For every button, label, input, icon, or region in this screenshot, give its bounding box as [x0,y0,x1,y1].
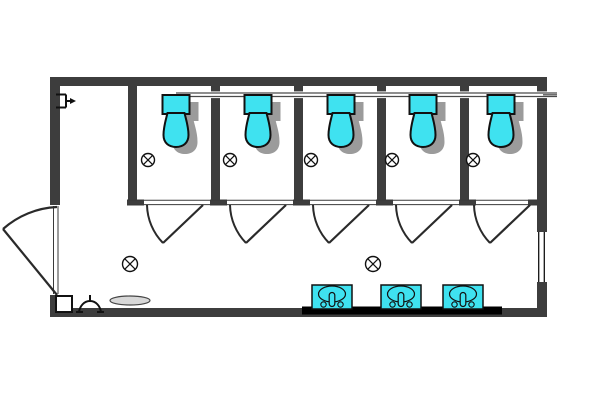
sink-handle [407,302,412,307]
sink [443,285,483,309]
ceiling-light-icon [142,154,155,167]
entry-door-leaf [3,229,57,295]
entry-door-swing-arc [3,207,57,229]
stall-door [474,205,530,243]
toilet [410,95,446,154]
toilet [163,95,199,154]
restroom-floor-plan [0,0,600,400]
floor-plan-canvas [0,0,600,400]
stall-door-leaf [163,205,203,243]
ceiling-light-icon [366,257,381,272]
sink-handle [338,302,343,307]
right-wall-lower [537,282,547,317]
toilet [328,95,364,154]
toilet-bowl [164,113,189,147]
stall-door-swing-arc [230,205,246,243]
stall-partition [377,86,386,200]
stall-door [396,205,452,243]
entry-door [3,206,58,295]
right-wall-upper [537,77,547,232]
stall-door-swing-arc [147,205,163,243]
toilet-bowl [246,113,271,147]
stall-partition [211,86,220,200]
toilet-tank [163,95,190,114]
stall-door-swing-arc [474,205,490,243]
sink-handle [390,302,395,307]
stall-door-swing-arc [396,205,412,243]
stall-doors [147,205,530,243]
toilet-tank [488,95,515,114]
ceiling-light-icon [123,257,138,272]
sink-handle [452,302,457,307]
toilet-tank [328,95,355,114]
toilet [488,95,524,154]
wall-bracket-arrow [70,98,76,104]
sink-handle [321,302,326,307]
stall-door-leaf [246,205,286,243]
ceiling-light-icon [386,154,399,167]
ceiling-light-icon [224,154,237,167]
stall-partition [128,86,137,200]
toilet [245,95,281,154]
ceiling-light-icon [305,154,318,167]
stall-door-leaf [412,205,452,243]
top-wall [50,77,547,86]
stall-partition [460,86,469,200]
toilet-bowl [329,113,354,147]
ceiling-light-icon [467,154,480,167]
window [537,232,547,282]
toilet-tank [245,95,272,114]
left-wall-upper [50,77,60,205]
sink-faucet [460,293,466,307]
floor-mat [110,296,150,305]
stall-door [230,205,286,243]
stall-door-leaf [490,205,530,243]
corner-box [56,296,72,312]
toilet-tank [410,95,437,114]
stall-door-swing-arc [313,205,329,243]
stall-partition [294,86,303,200]
toilet-bowl [411,113,436,147]
sink-faucet [398,293,404,307]
toilet-bowl [489,113,514,147]
stall-door [313,205,369,243]
stall-door-leaf [329,205,369,243]
sink-handle [469,302,474,307]
stall-door [147,205,203,243]
sink [312,285,352,309]
sink-faucet [329,293,335,307]
sink [381,285,421,309]
counter-and-sinks [302,285,502,315]
